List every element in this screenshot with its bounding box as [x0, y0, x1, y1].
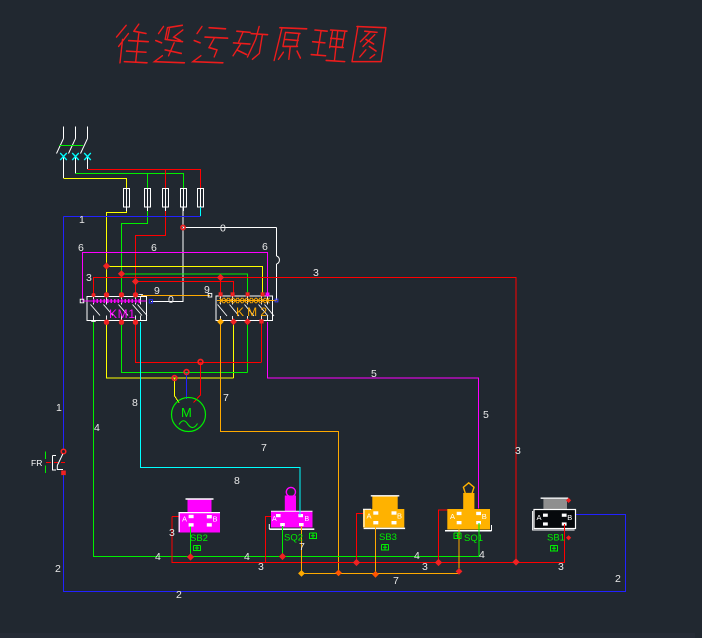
svg-text:3: 3: [258, 561, 264, 573]
svg-text:B: B: [397, 511, 402, 520]
svg-text:4: 4: [244, 551, 250, 563]
svg-text:B: B: [305, 516, 310, 523]
svg-text:3: 3: [169, 527, 175, 539]
svg-text:3: 3: [313, 267, 319, 279]
svg-text:3: 3: [558, 561, 564, 573]
svg-text:A: A: [272, 516, 277, 523]
svg-text:7: 7: [261, 442, 267, 454]
svg-text:4: 4: [414, 550, 420, 562]
svg-text:2: 2: [176, 589, 182, 601]
svg-text:3: 3: [515, 445, 521, 457]
svg-text:A: A: [182, 515, 187, 524]
svg-text:3: 3: [86, 272, 92, 284]
svg-text:B: B: [482, 512, 487, 521]
svg-text:2: 2: [55, 563, 61, 575]
svg-text:9: 9: [204, 284, 210, 296]
svg-text:8: 8: [132, 397, 138, 409]
svg-text:8: 8: [234, 475, 240, 487]
svg-text:A: A: [367, 511, 372, 520]
svg-text:KM2: KM2: [236, 305, 267, 319]
svg-text:SQ1: SQ1: [464, 533, 483, 544]
svg-text:6: 6: [151, 242, 157, 254]
svg-text:SB1: SB1: [547, 533, 565, 544]
svg-text:KM1: KM1: [109, 307, 135, 321]
svg-text:4: 4: [94, 422, 100, 434]
svg-text:B: B: [213, 515, 218, 524]
svg-text:M: M: [181, 405, 192, 420]
svg-text:3: 3: [422, 561, 428, 573]
svg-text:4: 4: [479, 549, 485, 561]
svg-text:5: 5: [371, 368, 377, 380]
svg-text:7: 7: [299, 541, 305, 553]
svg-text:B: B: [567, 513, 572, 522]
svg-text:6: 6: [78, 242, 84, 254]
svg-text:0: 0: [220, 223, 226, 235]
svg-text:1: 1: [79, 214, 85, 226]
svg-text:FR: FR: [31, 458, 42, 468]
svg-text:2: 2: [615, 573, 621, 585]
svg-text:SB3: SB3: [379, 532, 397, 543]
svg-text:1: 1: [56, 402, 62, 414]
svg-text:5: 5: [483, 409, 489, 421]
svg-text:9: 9: [154, 285, 160, 297]
svg-text:6: 6: [262, 241, 268, 253]
svg-text:A: A: [537, 513, 542, 522]
svg-text:4: 4: [155, 551, 161, 563]
svg-text:7: 7: [393, 575, 399, 587]
svg-text:A: A: [450, 512, 455, 521]
svg-text:SB2: SB2: [190, 533, 208, 544]
svg-text:0: 0: [168, 294, 174, 306]
svg-text:7: 7: [223, 392, 229, 404]
